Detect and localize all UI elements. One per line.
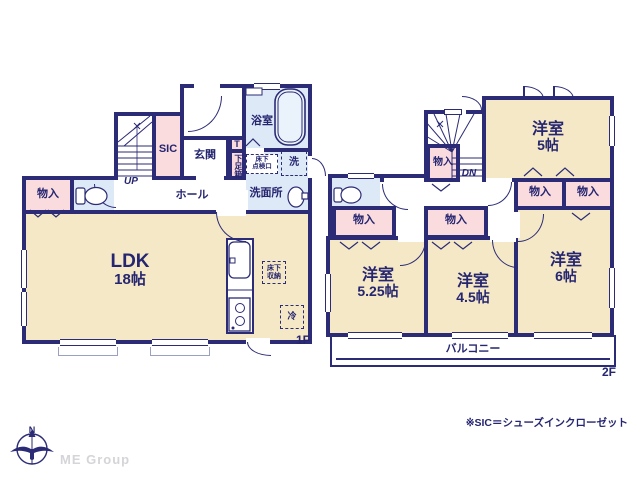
ldk-name: LDK: [110, 252, 149, 273]
window-swing-room5-b: [554, 86, 574, 99]
floor1-tag: 1F: [284, 334, 310, 347]
room5-name: 洋室: [532, 121, 564, 138]
washroom-exterior-door-swing: [312, 158, 326, 176]
hall-label: ホール: [160, 189, 224, 203]
sic-note: ※SIC＝シューズインクローゼット: [458, 416, 628, 431]
closet-1f-label: 物入: [24, 188, 72, 202]
room525-label: 洋室 5.25帖: [330, 260, 426, 306]
window-room5-east: [609, 116, 615, 146]
room5-size: 5帖: [537, 138, 559, 153]
laundry-label: 洗: [289, 158, 299, 169]
window-ldk-west2: [21, 292, 27, 326]
entrance-label: 玄関: [182, 148, 228, 164]
kitchen-counter: [226, 238, 254, 334]
underfloor-label-line1: 床下: [267, 265, 281, 272]
balcony-label: バルコニー: [330, 342, 616, 358]
compass-north-label: N: [25, 425, 39, 436]
shoe-t-label: T: [229, 138, 245, 151]
floor-plan-canvas: 床下 点検口 洗 床下 収納 冷: [0, 0, 640, 480]
terrace-step1: [58, 347, 118, 356]
entrance-hall-opening: [196, 176, 224, 184]
stairs-1f: [114, 112, 156, 182]
laundry-pan: 洗: [281, 151, 307, 176]
refrigerator-space: 冷: [280, 305, 304, 329]
underfloor-storage: 床下 収納: [262, 261, 286, 284]
room45-size: 4.5帖: [456, 290, 489, 305]
brand-logo-text: ME Group: [60, 452, 160, 468]
sic-label: SIC: [151, 142, 185, 157]
bird-logo-icon: [10, 447, 54, 460]
fridge-label: 冷: [287, 312, 296, 321]
window-toilet-2f: [348, 173, 374, 179]
down-label: DN: [452, 168, 486, 180]
room6-label: 洋室 6帖: [520, 246, 612, 290]
ldk-size: 18帖: [114, 272, 146, 288]
closet-2f-b-label: 物入: [563, 186, 613, 200]
underfloor-inspection-hatch: 床下 点検口: [246, 154, 278, 174]
room6-size: 6帖: [555, 269, 577, 284]
room5-label: 洋室 5帖: [500, 116, 596, 158]
inspection-label-line2: 点検口: [252, 164, 272, 171]
window-ldk-south2: [152, 339, 208, 346]
room525-name: 洋室: [362, 267, 394, 284]
window-swing-room5-a: [524, 86, 544, 99]
shoe-box-label: 下足箱: [231, 151, 244, 181]
closet-2f-a-label: 物入: [515, 186, 565, 200]
underfloor-label-line2: 収納: [267, 273, 281, 280]
room6-name: 洋室: [550, 252, 582, 269]
stairs-top-door-swing: [462, 96, 482, 110]
washroom-label: 洗面所: [243, 187, 289, 201]
bath-label: 浴室: [240, 114, 284, 130]
room525-size: 5.25帖: [357, 284, 398, 299]
closet-45-label: 物入: [425, 214, 487, 228]
balcony-inner-rail: [336, 358, 610, 360]
ldk-exterior-door-swing: [247, 342, 271, 356]
room45-label: 洋室 4.5帖: [426, 266, 520, 312]
window-ldk-south1: [60, 339, 116, 346]
front-door-opening: [194, 83, 220, 91]
window-bath-north: [254, 83, 280, 90]
room-toilet-2f: [328, 174, 384, 210]
window-room6-south: [534, 332, 592, 339]
window-room525-south: [348, 332, 402, 339]
closet-525-label: 物入: [333, 214, 395, 228]
terrace-step2: [150, 347, 210, 356]
window-ldk-west1: [21, 250, 27, 288]
ldk-label: LDK 18帖: [88, 248, 172, 292]
room45-name: 洋室: [457, 273, 489, 290]
floor2-tag: 2F: [588, 366, 616, 379]
window-room45-south: [452, 332, 508, 339]
up-label: UP: [114, 177, 148, 188]
stairs-top-door-leaf: [444, 109, 462, 115]
